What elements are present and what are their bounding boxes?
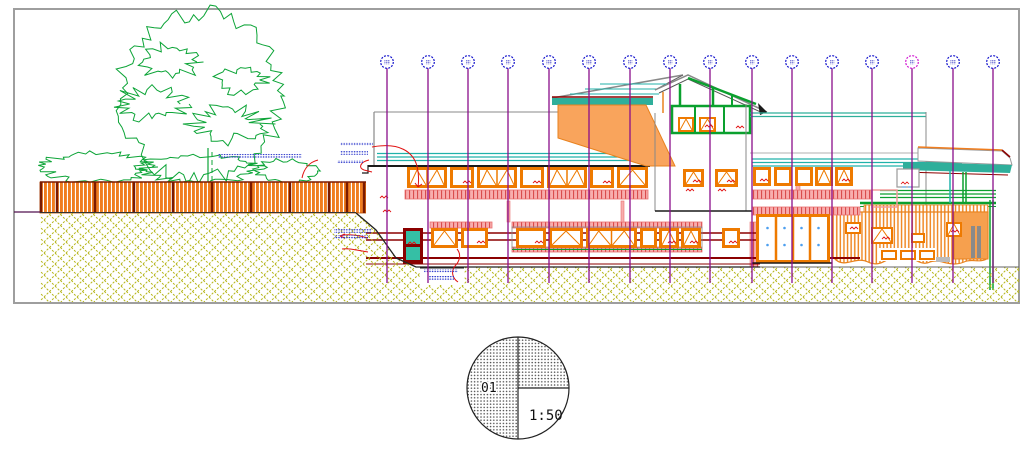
grid-bubble-label: [991, 60, 996, 65]
window: [753, 167, 771, 186]
detail-scale: 1:50: [529, 408, 563, 424]
annotation-text-line: [334, 229, 372, 233]
fence-post: [56, 182, 58, 213]
door-glass-mark: [817, 244, 820, 247]
window: [407, 167, 447, 188]
annotation-text-line: [334, 235, 368, 239]
window: [881, 250, 897, 260]
fence-post: [172, 182, 174, 213]
window: [946, 222, 962, 237]
door-glass-mark: [766, 227, 769, 230]
fence-post: [94, 182, 96, 213]
door-glass-mark: [766, 244, 769, 247]
grid-bubble-label: [506, 60, 511, 65]
window: [640, 228, 657, 248]
window: [919, 250, 935, 260]
grid-bubble-label: [587, 60, 592, 65]
grid-bubble-label: [547, 60, 552, 65]
window: [897, 169, 919, 187]
annotation-text-line: [424, 269, 458, 273]
grid-bubble-label: [668, 60, 673, 65]
window: [815, 167, 833, 186]
grid-bubble-label: [910, 60, 915, 65]
window: [547, 167, 587, 188]
annotation-text-line: [337, 160, 363, 164]
window: [900, 250, 916, 260]
window: [845, 222, 861, 234]
grid-bubble-label: [708, 60, 713, 65]
grid-bubble-label: [790, 60, 795, 65]
fence-post: [250, 182, 252, 213]
detail-number: 01: [481, 381, 497, 396]
window: [715, 169, 738, 187]
window: [590, 167, 614, 188]
grid-bubble-label: [385, 60, 390, 65]
window: [617, 167, 648, 188]
annotation-text-line: [340, 142, 373, 146]
fence-post: [346, 182, 348, 213]
door-glass-mark: [817, 227, 820, 230]
grid-bubble-label: [750, 60, 755, 65]
window: [699, 117, 716, 132]
grid-bubble-label: [426, 60, 431, 65]
annotation-text-line: [218, 154, 302, 158]
door-glass-mark: [783, 244, 786, 247]
annotation-block: [218, 154, 302, 158]
fence-post: [328, 182, 330, 213]
door-glass-mark: [800, 244, 803, 247]
fence-post: [363, 182, 365, 213]
detail-reference: 01 1:50: [467, 337, 569, 439]
window: [774, 167, 792, 186]
grid-bubble-label: [951, 60, 956, 65]
window: [911, 233, 925, 243]
window: [520, 167, 544, 188]
window: [722, 228, 740, 248]
window: [549, 228, 583, 248]
grid-bubble-label: [466, 60, 471, 65]
fence-post: [289, 182, 291, 213]
window: [659, 228, 679, 248]
window: [835, 167, 853, 186]
door-glass-mark: [800, 227, 803, 230]
window: [678, 117, 694, 132]
annotation-text-line: [428, 276, 454, 280]
window: [450, 167, 474, 188]
window: [431, 228, 458, 248]
window: [683, 169, 704, 187]
cad-viewport: 01 1:50: [0, 0, 1031, 454]
fence-post: [40, 182, 42, 213]
fence-post: [211, 182, 213, 213]
window: [477, 167, 517, 188]
elevation-sheet: 01 1:50: [0, 0, 1031, 454]
window: [461, 228, 488, 248]
grid-bubble-label: [628, 60, 633, 65]
grid-bubble-label: [870, 60, 875, 65]
basement-window: [403, 228, 423, 264]
annotation-text-line: [340, 151, 368, 155]
grid-bubble-label: [830, 60, 835, 65]
window: [795, 167, 813, 186]
fence: [40, 182, 366, 213]
fence-post: [133, 182, 135, 213]
window: [871, 227, 893, 244]
window: [516, 228, 546, 248]
door-glass-mark: [783, 227, 786, 230]
window: [681, 228, 701, 248]
